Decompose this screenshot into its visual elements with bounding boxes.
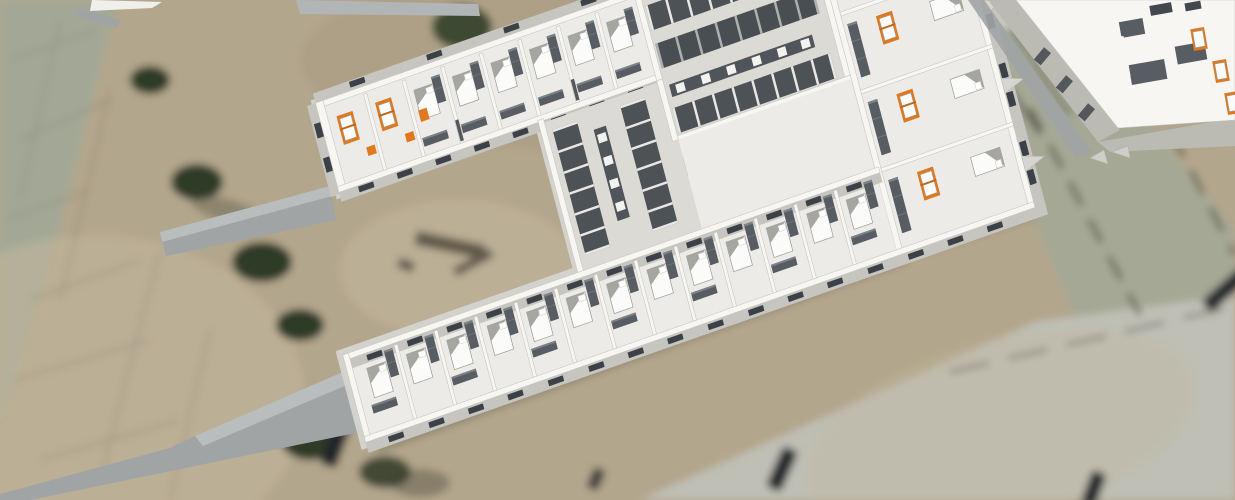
scene <box>0 0 1235 500</box>
tree <box>232 242 292 282</box>
viewport <box>0 0 1235 500</box>
bush <box>276 309 324 341</box>
bush <box>130 66 170 94</box>
tree <box>171 164 223 200</box>
tree-shadow <box>390 469 450 497</box>
